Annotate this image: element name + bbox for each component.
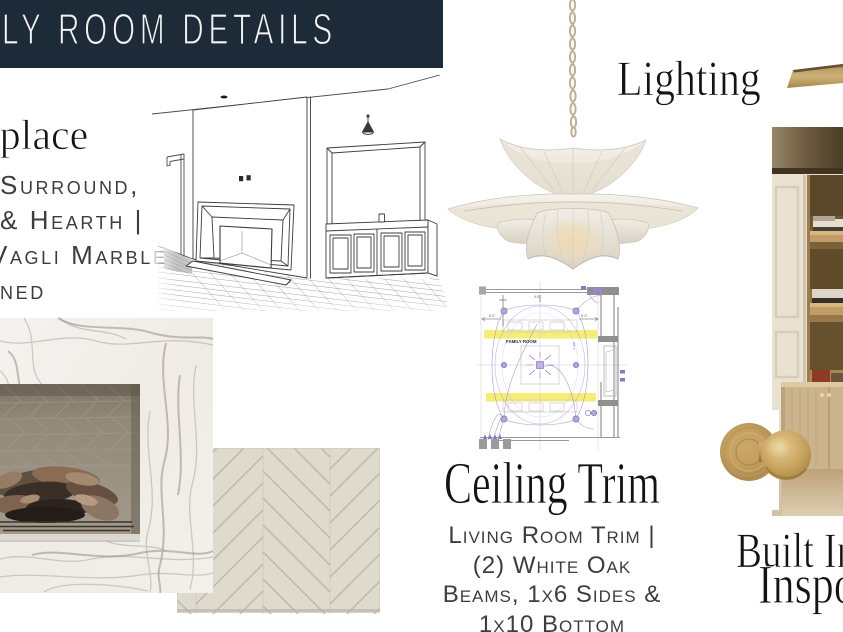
svg-text:5'-2": 5'-2" — [489, 314, 495, 318]
svg-text:4'-0": 4'-0" — [534, 295, 540, 299]
svg-text:5'-2": 5'-2" — [581, 314, 587, 318]
svg-text:FAMILY ROOM: FAMILY ROOM — [506, 339, 537, 344]
svg-text:WP-3: WP-3 — [572, 342, 576, 350]
